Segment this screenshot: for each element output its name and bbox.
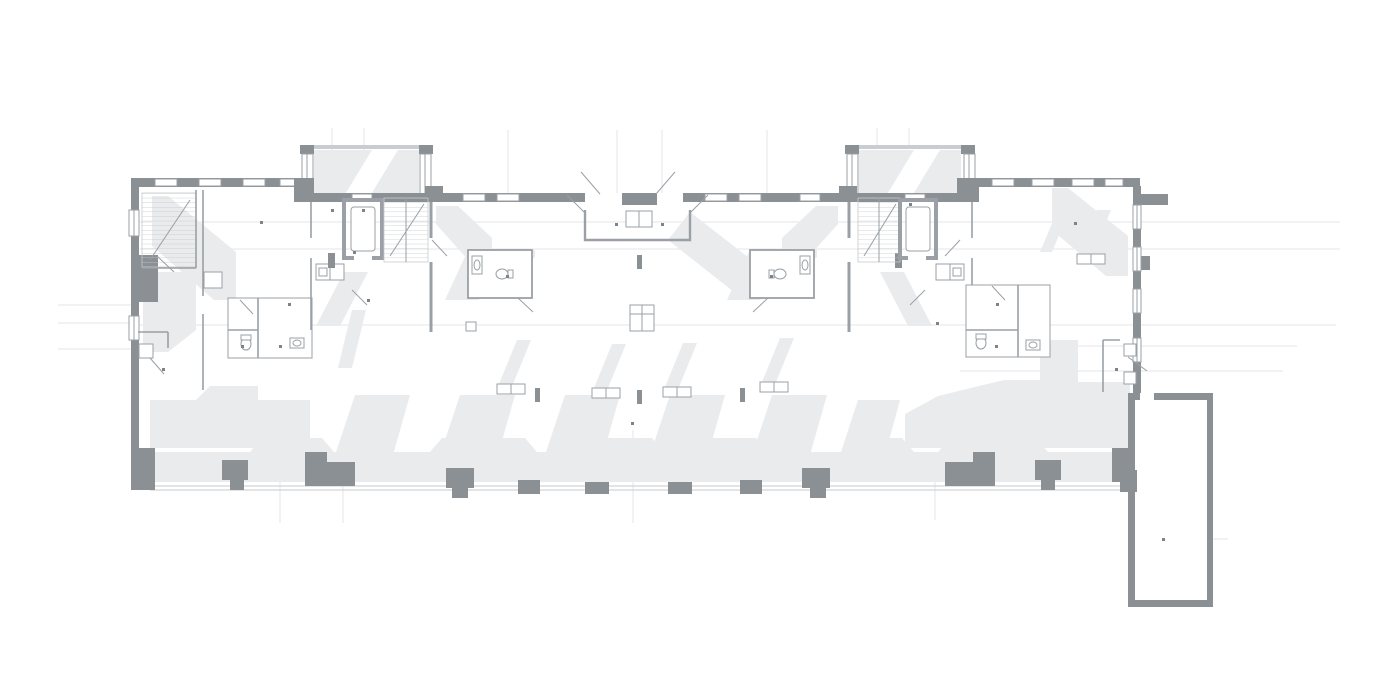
- elevator-door-gap: [354, 256, 372, 261]
- elevator-car: [351, 207, 375, 251]
- entrance-center-pier: [622, 193, 657, 205]
- east-stub-small: [1141, 256, 1150, 270]
- annex-door-opening: [1140, 393, 1154, 400]
- sink-icon: [800, 256, 810, 274]
- sink-icon: [472, 256, 482, 274]
- sink-icon: [1026, 340, 1040, 350]
- entrance-door-leaf: [581, 172, 600, 194]
- toilet-icon: [976, 334, 986, 349]
- annex-room-south-east: [1120, 393, 1213, 607]
- emergency-stair-left: [142, 190, 196, 268]
- entrance-door-opening: [585, 193, 622, 202]
- bay-window-left: [300, 145, 433, 196]
- main-stair-right: [858, 198, 900, 262]
- stair-core-left: [294, 145, 443, 332]
- stair-treads: [142, 193, 196, 267]
- cabinet-box: [139, 344, 153, 358]
- window-symbol-table: [630, 305, 654, 331]
- annex-pier: [1120, 470, 1137, 492]
- radiators: [328, 253, 902, 404]
- bench: [1077, 254, 1105, 264]
- elevator-right: [900, 200, 936, 261]
- wc-pod-left: [468, 250, 532, 298]
- floor-plan-page: [0, 0, 1400, 700]
- kitchenette-counter: [936, 264, 964, 280]
- entrance-door-opening: [657, 193, 683, 202]
- sink-icon: [290, 338, 304, 348]
- elevator-door-gap: [908, 256, 926, 261]
- entrance-door-leaf: [656, 172, 675, 194]
- bath-suite-left-wing: [228, 298, 312, 358]
- duct-box: [204, 272, 222, 288]
- elevator-car: [906, 207, 930, 251]
- east-stub: [1140, 194, 1168, 205]
- floor-plan-drawing: [0, 0, 1400, 700]
- toilet-icon: [496, 269, 513, 279]
- floor-box: [466, 322, 476, 331]
- bay-window-right: [845, 145, 975, 196]
- wc-pod-right: [750, 250, 814, 298]
- main-stair-left: [384, 198, 428, 262]
- bath-suite-right-wing: [966, 285, 1050, 357]
